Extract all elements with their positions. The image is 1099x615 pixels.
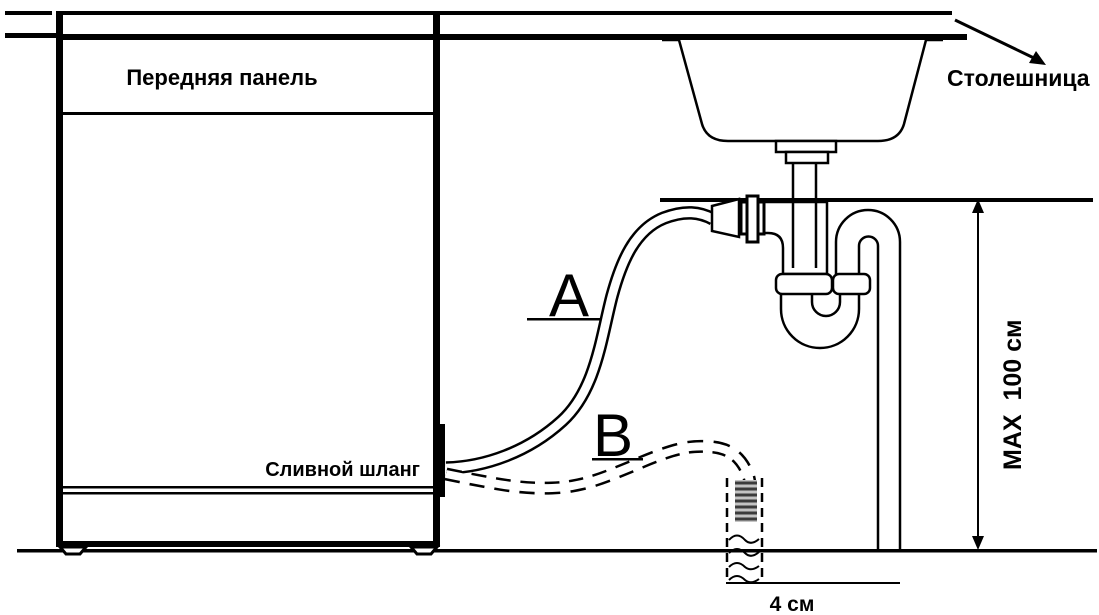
kick-panel-line-1 xyxy=(57,486,440,489)
hose-a-outline xyxy=(446,213,713,468)
sink-drain-flange-upper xyxy=(776,141,836,152)
installation-diagram: Передняя панель xyxy=(0,0,1099,615)
drain-hose-a xyxy=(446,213,713,468)
foot-right xyxy=(411,547,437,554)
countertop-label: Столешница xyxy=(947,65,1090,91)
standpipe xyxy=(727,478,762,583)
dishwasher-left-wall xyxy=(56,11,63,547)
coupling-ring-right xyxy=(758,202,764,234)
drain-hose-label: Сливной шланг xyxy=(265,459,420,481)
option-b-underline xyxy=(592,458,643,461)
slip-nut-right xyxy=(833,274,870,294)
slip-nut-left xyxy=(776,274,832,294)
standpipe-width-label: 4 см xyxy=(770,593,815,615)
countertop-top-line-left xyxy=(5,11,52,15)
siphon-u-bend xyxy=(781,290,859,348)
floor-line xyxy=(17,549,1097,553)
arrow-down-icon xyxy=(972,536,984,550)
countertop xyxy=(5,11,967,40)
dimension-max-height: MAX 100 см xyxy=(972,199,1027,550)
sink xyxy=(662,40,943,163)
countertop-bottom-line-left xyxy=(5,33,57,38)
front-panel-label: Передняя панель xyxy=(126,65,317,90)
hose-b-end-hatch xyxy=(735,483,757,519)
hose-a-core xyxy=(446,213,713,468)
coupling-ring-center xyxy=(747,196,758,242)
siphon-tee xyxy=(763,202,827,274)
dimension-standpipe-width: 4 см xyxy=(726,583,900,615)
kick-panel-line-2 xyxy=(57,492,440,495)
u-bend-outer xyxy=(781,290,859,348)
hose-coupling xyxy=(741,196,764,242)
max-height-label: MAX 100 см xyxy=(999,319,1027,470)
callout-arrow-line xyxy=(955,20,1036,59)
countertop-top-line xyxy=(62,11,952,15)
sink-basin xyxy=(662,40,943,141)
foot-left xyxy=(60,547,86,554)
countertop-callout: Столешница xyxy=(947,20,1090,91)
water-waves xyxy=(729,536,759,583)
dishwasher-bottom-line xyxy=(57,541,440,547)
wall-drain-pipe xyxy=(836,210,900,551)
hose-a-end-cone xyxy=(712,199,739,237)
countertop-bottom-line xyxy=(57,34,967,40)
option-a-underline xyxy=(527,318,601,321)
sink-drain-flange-lower xyxy=(786,152,828,163)
hose-bracket xyxy=(437,424,445,497)
u-bend-inner xyxy=(812,292,840,316)
front-panel-bottom-line xyxy=(57,112,440,115)
drain-pipe-outer xyxy=(836,210,900,551)
